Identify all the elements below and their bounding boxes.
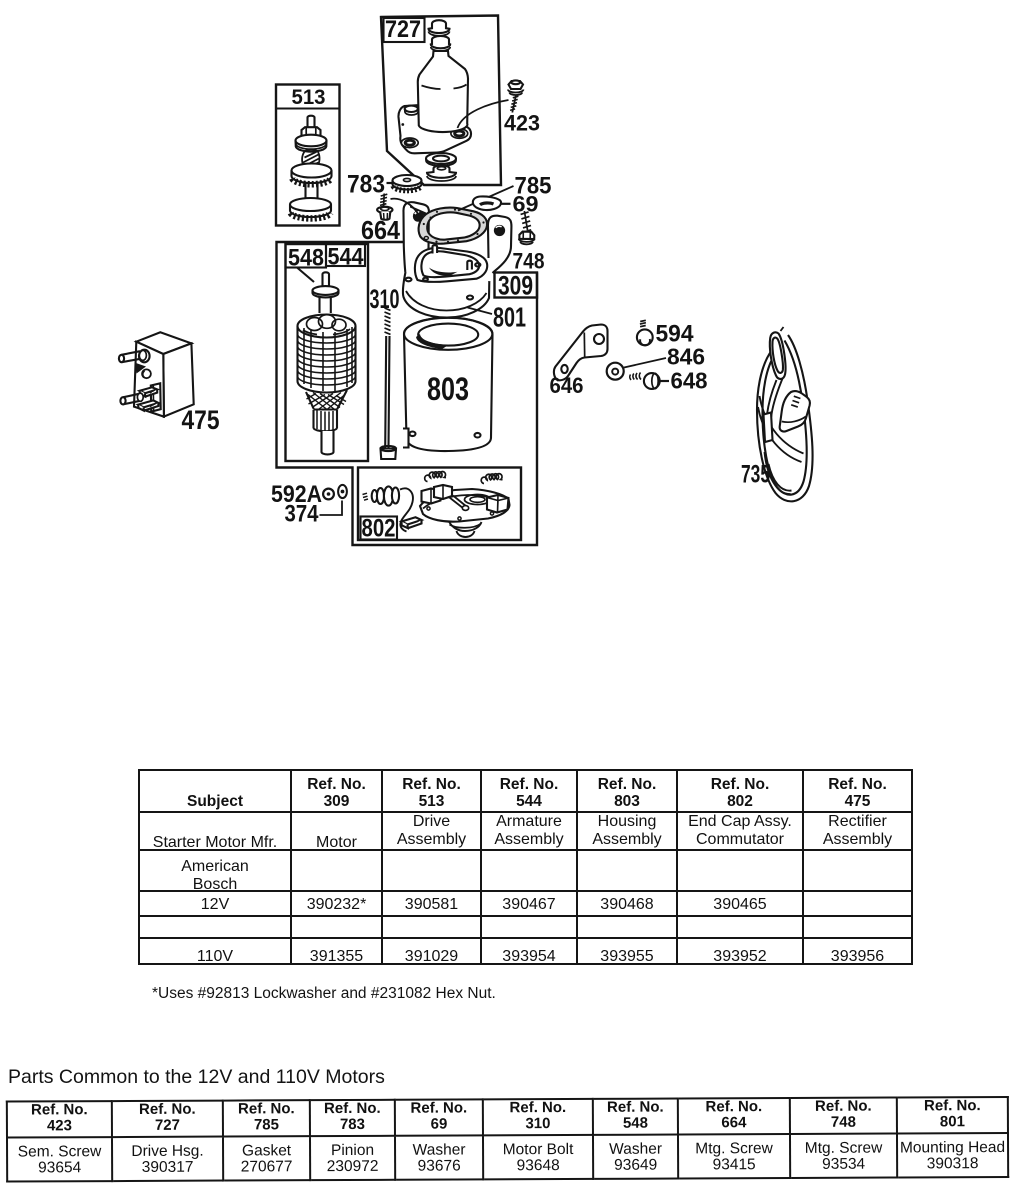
svg-text:664: 664 <box>361 215 400 245</box>
svg-text:374: 374 <box>285 501 320 528</box>
svg-text:803: 803 <box>427 371 469 407</box>
svg-text:846: 846 <box>667 344 705 370</box>
svg-text:475: 475 <box>182 405 220 435</box>
svg-text:310: 310 <box>370 284 400 314</box>
svg-text:801: 801 <box>493 302 526 333</box>
svg-text:727: 727 <box>385 16 421 43</box>
svg-text:802: 802 <box>362 515 396 543</box>
svg-text:748: 748 <box>513 249 545 274</box>
svg-text:548: 548 <box>288 245 324 272</box>
svg-text:646: 646 <box>550 373 584 398</box>
svg-text:735: 735 <box>741 461 770 489</box>
svg-text:309: 309 <box>498 271 533 301</box>
svg-text:648: 648 <box>671 368 708 394</box>
svg-text:783: 783 <box>347 171 385 199</box>
svg-text:544: 544 <box>328 244 365 271</box>
svg-text:513: 513 <box>292 86 326 109</box>
svg-text:423: 423 <box>504 111 540 136</box>
